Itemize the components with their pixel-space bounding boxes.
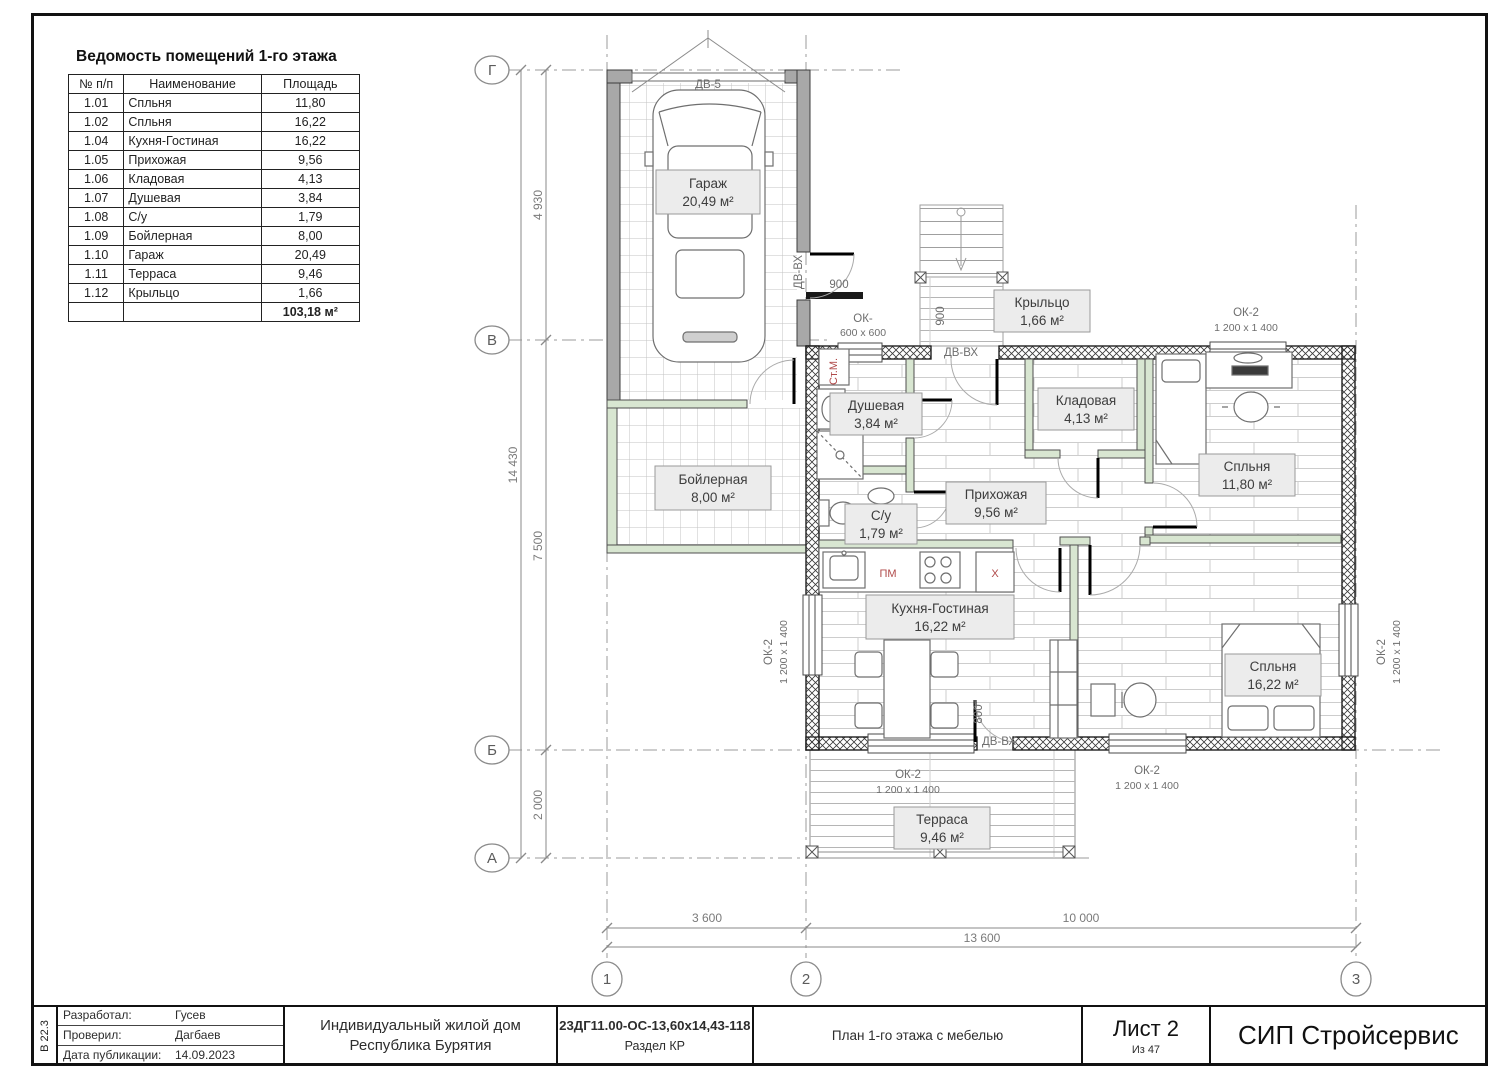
car — [645, 90, 773, 362]
date-row: Дата публикации:14.09.2023 — [58, 1046, 283, 1065]
developed-row: Разработал:Гусев — [58, 1006, 283, 1026]
svg-text:4,13 м²: 4,13 м² — [1064, 411, 1108, 426]
svg-text:Душевая: Душевая — [848, 398, 904, 413]
svg-text:Гараж: Гараж — [689, 176, 727, 191]
window-size-small: 600 x 600 — [840, 327, 886, 339]
project-line1: Индивидуальный жилой дом — [285, 1016, 555, 1036]
drawing-page: Ведомость помещений 1-го этажа № п/п Наи… — [0, 0, 1503, 1080]
svg-text:20,49 м²: 20,49 м² — [682, 194, 734, 209]
stamp-code: В 22.3 — [39, 1020, 51, 1052]
project-line2: Республика Бурятия — [285, 1036, 555, 1056]
svg-text:8,00 м²: 8,00 м² — [691, 490, 735, 505]
axis-2: 2 — [802, 971, 810, 988]
room-label-shower: Душевая3,84 м² — [830, 393, 922, 435]
room-label-bedroom1: Спльня11,80 м² — [1199, 454, 1295, 496]
svg-text:С/у: С/у — [871, 508, 892, 523]
dishwasher-label: ПМ — [879, 568, 896, 580]
sheet-number: Лист 2 — [1083, 1016, 1209, 1042]
company-cell: СИП Стройсервис — [1211, 1007, 1486, 1064]
window-label-bottom: ОК-2 — [1134, 765, 1160, 777]
sheet-number-cell: Лист 2 Из 47 — [1083, 1007, 1211, 1064]
room-label-garage: Гараж20,49 м² — [656, 170, 760, 214]
svg-text:16,22 м²: 16,22 м² — [914, 619, 966, 634]
window-ok2-left — [803, 595, 822, 675]
svg-text:3,84 м²: 3,84 м² — [854, 416, 898, 431]
door-label-garage-side: ДВ-ВХ — [793, 255, 805, 289]
axis-v: В — [487, 332, 497, 349]
window-label-top: ОК-2 — [1233, 307, 1259, 319]
kitchen-sink — [823, 551, 865, 588]
window-ok2-right — [1339, 604, 1358, 676]
vestibule-wall — [806, 254, 863, 299]
title-block: В 22.3 Разработал:Гусев Проверил:Дагбаев… — [31, 1005, 1488, 1066]
desk-bedroom2 — [1091, 684, 1115, 716]
door-label-entry: ДВ-ВХ — [944, 347, 978, 359]
dim-bottom-2: 10 000 — [1063, 911, 1100, 925]
svg-text:16,22 м²: 16,22 м² — [1247, 677, 1299, 692]
window-label-right: ОК-2 — [1376, 639, 1388, 665]
dim-900-h: 900 — [829, 279, 848, 291]
developed-value: Гусев — [175, 1006, 283, 1025]
room-label-wc: С/у1,79 м² — [845, 504, 917, 544]
svg-text:9,46 м²: 9,46 м² — [920, 830, 964, 845]
dim-800-v: 800 — [973, 704, 985, 723]
axis-1: 1 — [603, 971, 611, 988]
window-label-left: ОК-2 — [763, 639, 775, 665]
window-label-small: ОК- — [853, 313, 873, 325]
axis-b: Б — [487, 742, 497, 759]
door-label-garage-gate: ДВ-5 — [695, 79, 721, 91]
svg-text:Спльня: Спльня — [1224, 459, 1271, 474]
axis-3: 3 — [1352, 971, 1360, 988]
axis-a: А — [487, 850, 497, 867]
svg-text:Спльня: Спльня — [1250, 659, 1297, 674]
date-label: Дата публикации: — [58, 1046, 175, 1065]
window-label-terrace: ОК-2 — [895, 769, 921, 781]
svg-text:Кухня-Гостиная: Кухня-Гостиная — [891, 601, 988, 616]
stove — [920, 552, 960, 588]
section-label: Раздел КР — [558, 1039, 752, 1053]
door-label-terrace: ДВ-ВХ — [982, 736, 1016, 748]
svg-text:Крыльцо: Крыльцо — [1014, 295, 1069, 310]
checked-value: Дагбаев — [175, 1026, 283, 1045]
svg-text:9,56 м²: 9,56 м² — [974, 505, 1018, 520]
sheet-of: Из 47 — [1083, 1044, 1209, 1056]
fridge-label: Х — [991, 568, 999, 580]
sheet-title-cell: План 1-го этажа с мебелью — [754, 1007, 1083, 1064]
wc-basin — [868, 488, 894, 504]
room-label-boiler: Бойлерная8,00 м² — [655, 466, 771, 510]
svg-text:Кладовая: Кладовая — [1056, 393, 1116, 408]
svg-text:Терраса: Терраса — [916, 812, 968, 827]
checked-label: Проверил: — [58, 1026, 175, 1045]
dim-left-3: 2 000 — [531, 790, 545, 820]
window-size-top: 1 200 x 1 400 — [1214, 322, 1278, 334]
svg-text:Бойлерная: Бойлерная — [678, 472, 747, 487]
window-size-right: 1 200 x 1 400 — [1391, 620, 1403, 684]
room-label-kitchen: Кухня-Гостиная16,22 м² — [866, 595, 1014, 639]
window-size-left: 1 200 x 1 400 — [778, 620, 790, 684]
company-name: СИП Стройсервис — [1211, 1020, 1486, 1051]
dim-bottom-1: 3 600 — [692, 911, 722, 925]
window-size-terrace: 1 200 x 1 400 — [876, 784, 940, 796]
dim-bottom-total: 13 600 — [964, 931, 1001, 945]
stamp-cell: В 22.3 — [33, 1007, 58, 1064]
svg-text:11,80 м²: 11,80 м² — [1222, 477, 1273, 492]
project-cell: Индивидуальный жилой дом Республика Буря… — [285, 1007, 557, 1064]
date-value: 14.09.2023 — [175, 1046, 283, 1065]
dim-left-total: 14 430 — [506, 446, 520, 483]
axis-g: Г — [488, 62, 496, 79]
room-label-hall: Прихожая9,56 м² — [946, 482, 1046, 524]
room-label-bedroom2: Спльня16,22 м² — [1225, 654, 1321, 696]
info-cell: Разработал:Гусев Проверил:Дагбаев Дата п… — [58, 1007, 285, 1064]
dining-table — [884, 640, 930, 738]
developed-label: Разработал: — [58, 1006, 175, 1025]
shower-tray — [817, 431, 863, 479]
svg-text:1,66 м²: 1,66 м² — [1020, 313, 1064, 328]
sheet-title: План 1-го этажа с мебелью — [754, 1028, 1081, 1043]
bed-small — [1156, 354, 1206, 464]
svg-text:Прихожая: Прихожая — [965, 487, 1028, 502]
window-ok2-bottom — [1109, 734, 1186, 753]
dim-left-2: 7 500 — [531, 531, 545, 561]
checked-row: Проверил:Дагбаев — [58, 1026, 283, 1046]
project-code: 23ДГ11.00-ОС-13,60х14,43-118 — [558, 1018, 752, 1033]
svg-text:1,79 м²: 1,79 м² — [859, 526, 903, 541]
sofa — [1050, 640, 1077, 738]
floor-plan: 4 930 7 500 2 000 14 430 3 600 10 000 13… — [0, 0, 1503, 1080]
dim-900-v: 900 — [935, 306, 947, 325]
room-label-porch: Крыльцо1,66 м² — [994, 290, 1090, 332]
room-label-terrace: Терраса9,46 м² — [894, 807, 990, 849]
window-size-bottom: 1 200 x 1 400 — [1115, 780, 1179, 792]
desk-bedroom1 — [1206, 352, 1292, 388]
washer-label: Ст.М. — [828, 358, 840, 385]
room-label-storage: Кладовая4,13 м² — [1038, 388, 1134, 430]
dim-left-1: 4 930 — [531, 190, 545, 220]
code-cell: 23ДГ11.00-ОС-13,60х14,43-118 Раздел КР — [558, 1007, 754, 1064]
